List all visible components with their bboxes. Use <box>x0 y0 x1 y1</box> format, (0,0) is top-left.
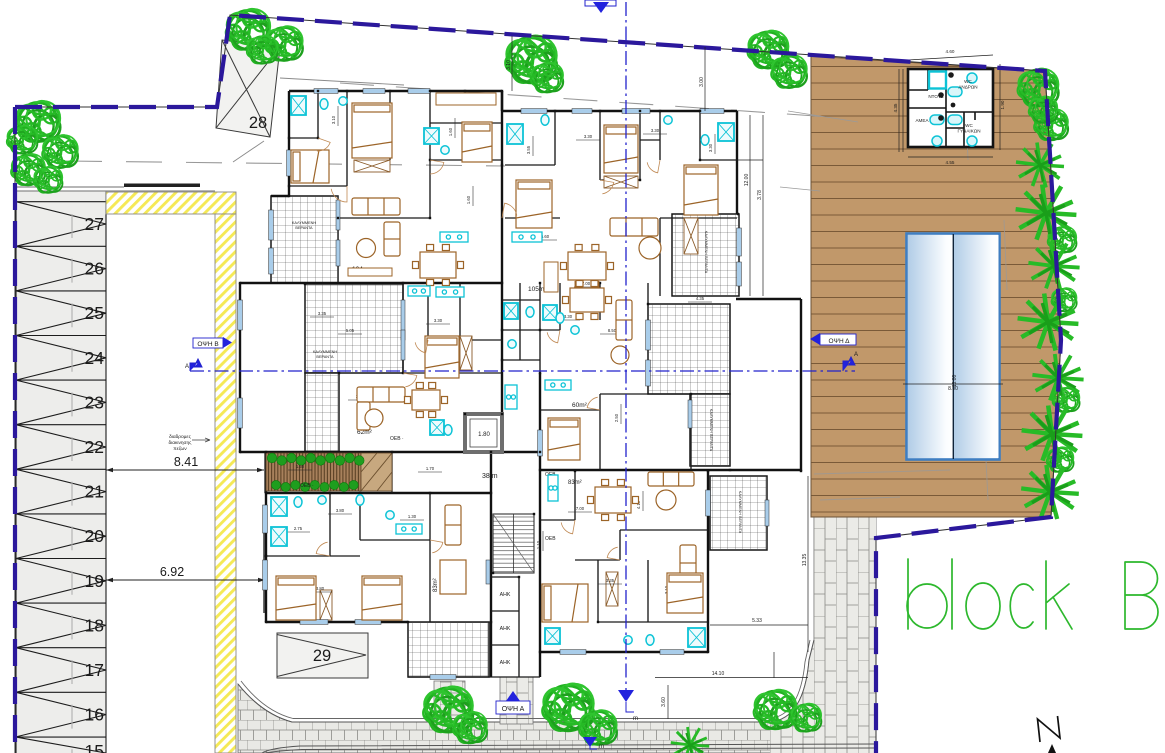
svg-text:24: 24 <box>85 348 105 368</box>
svg-text:3.30: 3.30 <box>708 143 713 152</box>
svg-text:ΟΨΗ Α: ΟΨΗ Α <box>502 706 525 713</box>
svg-text:28: 28 <box>249 114 267 132</box>
svg-text:23: 23 <box>85 392 104 412</box>
svg-text:13.35: 13.35 <box>802 554 808 567</box>
svg-text:m: m <box>633 716 638 722</box>
svg-text:15: 15 <box>85 741 104 753</box>
svg-text:3.10: 3.10 <box>506 60 512 70</box>
svg-text:ΚΑΛΥΜΜΕΝΗ: ΚΑΛΥΜΜΕΝΗ <box>313 350 337 354</box>
svg-text:12.00: 12.00 <box>744 174 750 187</box>
svg-text:3.30: 3.30 <box>651 128 660 133</box>
svg-text:ΑΜΕΑ: ΑΜΕΑ <box>915 118 929 123</box>
svg-text:ΟΨΗ Β: ΟΨΗ Β <box>197 341 218 348</box>
svg-text:4.55: 4.55 <box>946 160 955 165</box>
svg-text:ΟΕΒ ·: ΟΕΒ · <box>390 436 404 442</box>
svg-text:1.80: 1.80 <box>478 432 490 438</box>
svg-text:19: 19 <box>85 571 104 591</box>
svg-text:18: 18 <box>85 615 104 635</box>
svg-text:3.10: 3.10 <box>331 115 336 124</box>
svg-text:WC: WC <box>965 123 973 128</box>
svg-text:3.55: 3.55 <box>526 145 531 154</box>
svg-text:3.80: 3.80 <box>316 586 325 591</box>
svg-text:A: A <box>185 364 189 370</box>
svg-text:5.05: 5.05 <box>346 328 355 333</box>
svg-text:16: 16 <box>85 705 104 725</box>
svg-text:ΒΕΡΑΝΤΑ: ΒΕΡΑΝΤΑ <box>316 355 334 359</box>
svg-text:ΟΕΒ ·: ΟΕΒ · <box>300 483 314 489</box>
svg-text:60m²: 60m² <box>572 402 588 409</box>
svg-text:ΒΕΡΑΝΤΑ: ΒΕΡΑΝΤΑ <box>295 226 313 230</box>
svg-text:ΑΝΔΡΩΝ: ΑΝΔΡΩΝ <box>958 85 977 90</box>
svg-text:1.60: 1.60 <box>448 127 453 136</box>
svg-text:3.00: 3.00 <box>699 77 705 87</box>
svg-text:4.35: 4.35 <box>696 296 705 301</box>
svg-text:διακινησης: διακινησης <box>169 440 193 446</box>
svg-text:29: 29 <box>313 647 331 665</box>
svg-text:ΓΥΝΑΙΚΩΝ: ΓΥΝΑΙΚΩΝ <box>957 129 980 134</box>
svg-text:3.35: 3.35 <box>606 578 615 583</box>
svg-text:3.30: 3.30 <box>584 134 593 139</box>
svg-text:8.41: 8.41 <box>174 455 198 469</box>
svg-text:ΑΗΚ: ΑΗΚ <box>500 592 511 598</box>
svg-text:14.10: 14.10 <box>712 671 725 677</box>
svg-text:7.00: 7.00 <box>576 506 585 511</box>
svg-text:25: 25 <box>85 303 104 323</box>
svg-text:m: m <box>599 744 604 750</box>
svg-text:ΝΤΟΥΣ: ΝΤΟΥΣ <box>928 94 944 99</box>
svg-text:1.60: 1.60 <box>466 195 471 204</box>
svg-text:3.78: 3.78 <box>757 190 763 200</box>
svg-text:2.75: 2.75 <box>294 526 303 531</box>
svg-text:6.92: 6.92 <box>160 565 184 579</box>
svg-text:83m²: 83m² <box>433 578 439 592</box>
svg-text:WC: WC <box>964 79 972 84</box>
svg-text:ΚΑΛΥΜΜΕΝΗ ΒΕΡΑΝΤΑ: ΚΑΛΥΜΜΕΝΗ ΒΕΡΑΝΤΑ <box>709 409 713 452</box>
svg-text:21: 21 <box>85 482 104 502</box>
svg-text:διαδρομες: διαδρομες <box>169 434 191 440</box>
svg-text:1.90: 1.90 <box>1000 100 1005 109</box>
svg-text:1.50: 1.50 <box>296 464 305 469</box>
svg-text:3.30: 3.30 <box>434 318 443 323</box>
svg-text:38tm: 38tm <box>482 473 498 480</box>
svg-text:ΚΑΛΥΜΜΕΝΗ: ΚΑΛΥΜΜΕΝΗ <box>292 221 316 225</box>
svg-text:1.30: 1.30 <box>408 514 417 519</box>
svg-text:22: 22 <box>85 437 104 457</box>
svg-text:πεζων: πεζων <box>173 446 187 452</box>
svg-text:3.35: 3.35 <box>318 311 327 316</box>
svg-text:26: 26 <box>85 259 104 279</box>
svg-text:A: A <box>854 352 858 358</box>
svg-text:ΑΗΚ: ΑΗΚ <box>500 626 511 632</box>
svg-text:27: 27 <box>85 214 104 234</box>
svg-text:4.35: 4.35 <box>893 103 898 112</box>
svg-text:ΟΨΗ Δ: ΟΨΗ Δ <box>829 338 851 345</box>
svg-text:1.70: 1.70 <box>426 466 435 471</box>
svg-text:3.30: 3.30 <box>564 314 573 319</box>
svg-text:83m²: 83m² <box>568 480 582 486</box>
svg-text:4.60: 4.60 <box>946 49 955 54</box>
svg-text:3.60: 3.60 <box>661 697 667 707</box>
svg-text:2.50: 2.50 <box>614 413 619 422</box>
svg-text:17: 17 <box>85 660 104 680</box>
svg-text:ΟΕΒ: ΟΕΒ <box>545 536 556 542</box>
svg-text:ΚΑΛΥΜΜΕΝΗ ΒΕΡΑΝΤΑ: ΚΑΛΥΜΜΕΝΗ ΒΕΡΑΝΤΑ <box>738 491 742 534</box>
svg-text:ΚΑΛΥΜΜΕΝΗ ΒΕΡΑΝΤΑ: ΚΑΛΥΜΜΕΝΗ ΒΕΡΑΝΤΑ <box>704 231 708 274</box>
svg-text:8.00: 8.00 <box>948 386 958 392</box>
svg-text:1.10: 1.10 <box>536 540 541 549</box>
svg-text:5.33: 5.33 <box>752 618 762 624</box>
svg-text:ΑΗΚ: ΑΗΚ <box>500 660 511 666</box>
svg-text:20: 20 <box>85 526 105 546</box>
svg-text:3.80: 3.80 <box>336 508 345 513</box>
